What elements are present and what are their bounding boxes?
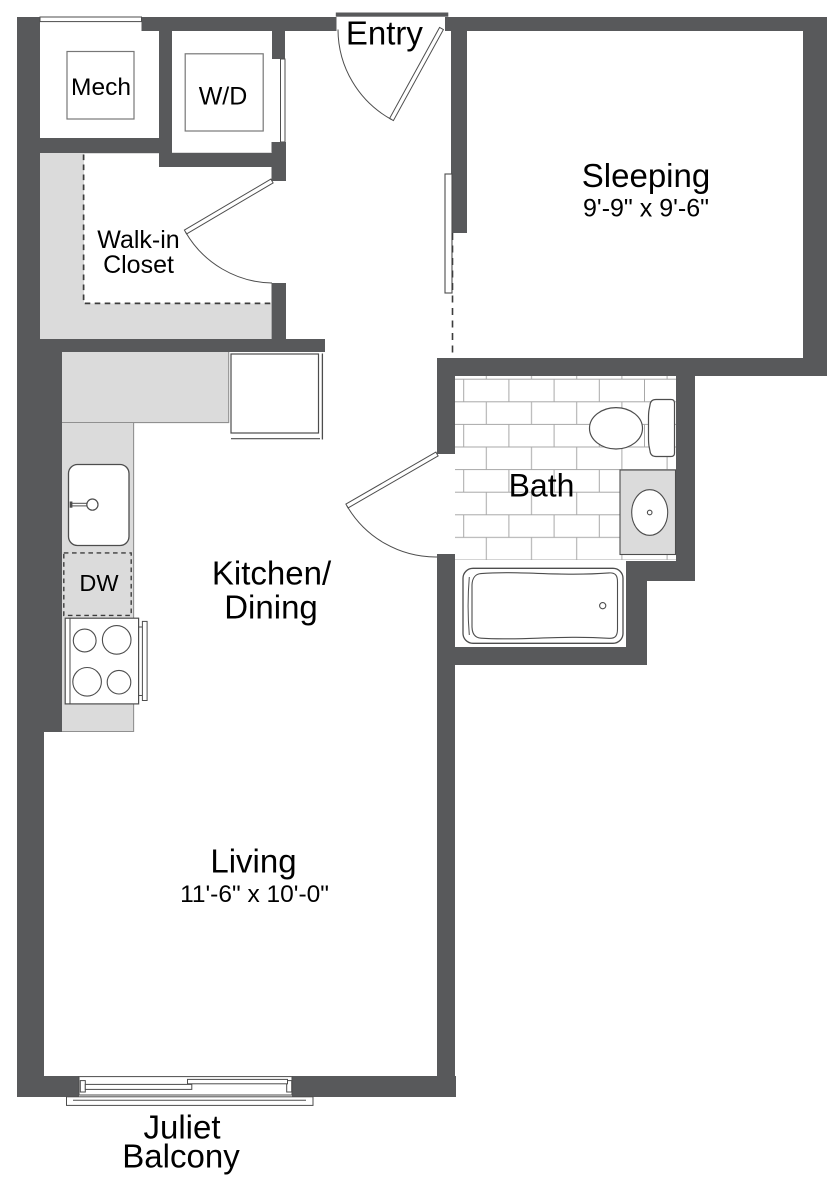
svg-text:Kitchen/: Kitchen/ [212,555,332,592]
svg-text:11'-6" x 10'-0": 11'-6" x 10'-0" [180,881,329,908]
svg-text:9'-9" x 9'-6": 9'-9" x 9'-6" [583,195,709,223]
svg-text:Living: Living [210,843,296,880]
svg-text:Closet: Closet [103,251,174,279]
svg-text:Walk-in: Walk-in [97,226,179,254]
svg-text:Sleeping: Sleeping [582,157,710,194]
svg-text:Balcony: Balcony [122,1138,240,1175]
svg-text:Bath: Bath [509,467,575,503]
svg-text:Entry: Entry [346,14,424,51]
svg-text:DW: DW [79,570,119,596]
svg-text:Mech: Mech [71,74,131,101]
svg-text:Dining: Dining [224,588,318,625]
svg-text:W/D: W/D [199,83,248,111]
